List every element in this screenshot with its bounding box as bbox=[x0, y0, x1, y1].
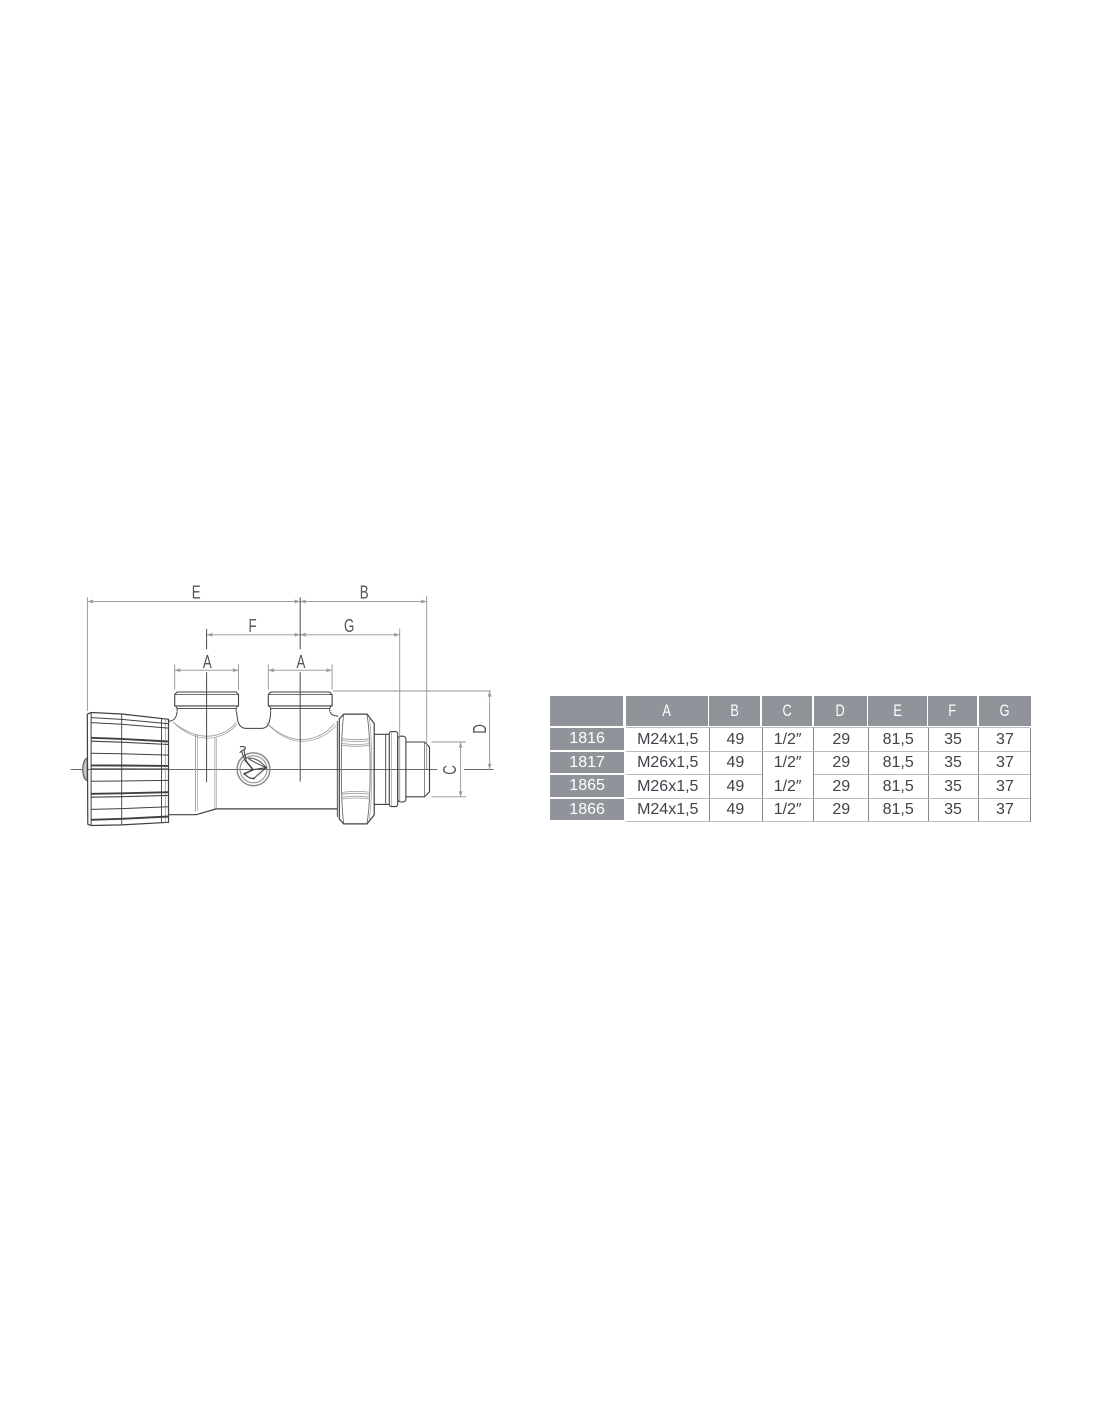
svg-text:B: B bbox=[360, 582, 369, 603]
svg-text:F: F bbox=[249, 616, 257, 637]
svg-text:E: E bbox=[192, 582, 201, 603]
svg-text:G: G bbox=[344, 616, 354, 637]
svg-text:A: A bbox=[203, 652, 212, 673]
svg-text:A: A bbox=[296, 652, 305, 673]
svg-text:C: C bbox=[440, 765, 461, 775]
svg-text:D: D bbox=[470, 724, 491, 734]
